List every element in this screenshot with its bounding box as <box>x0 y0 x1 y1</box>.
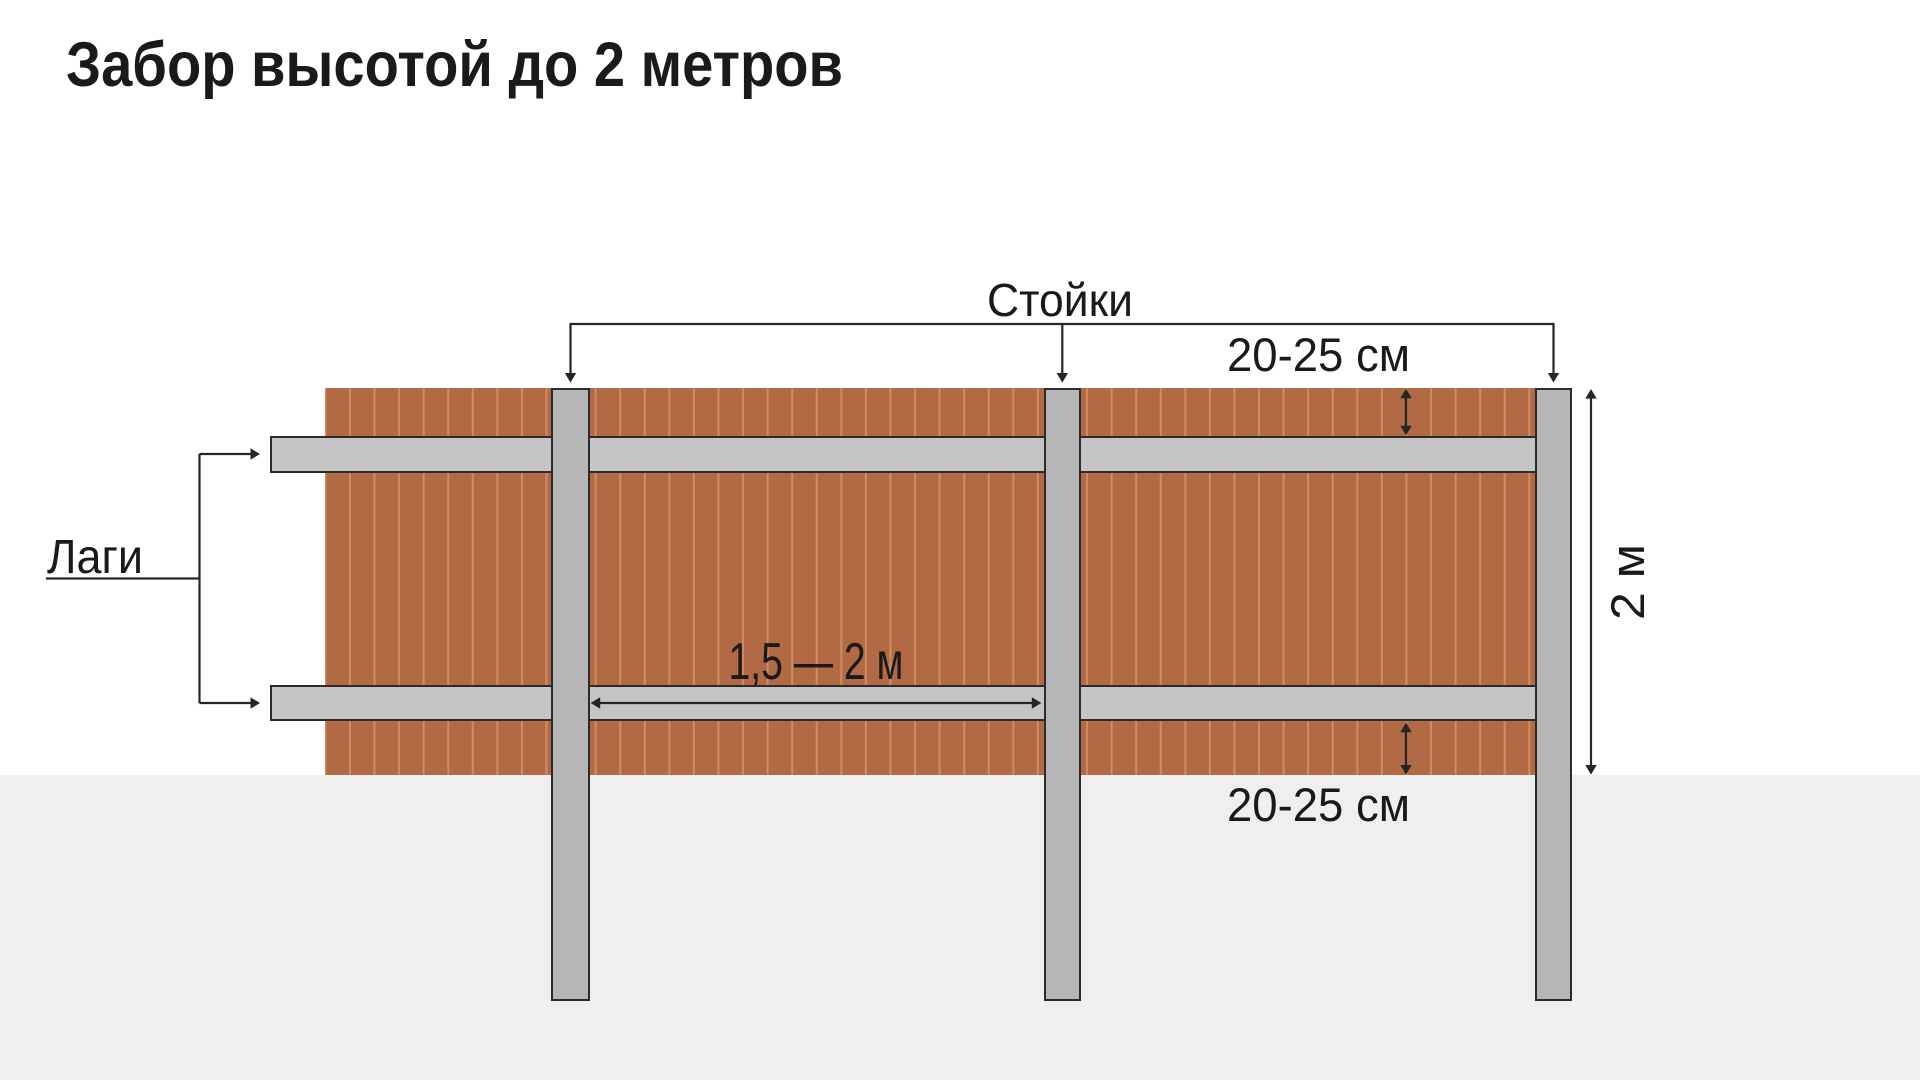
svg-text:Стойки: Стойки <box>987 274 1133 326</box>
svg-text:Лаги: Лаги <box>47 531 143 584</box>
svg-text:1,5 — 2 м: 1,5 — 2 м <box>729 633 904 691</box>
svg-text:20-25 см: 20-25 см <box>1227 778 1410 831</box>
svg-text:20-25 см: 20-25 см <box>1227 328 1410 381</box>
svg-text:Забор высотой до 2 метров: Забор высотой до 2 метров <box>66 30 843 100</box>
svg-text:2 м: 2 м <box>1601 544 1654 620</box>
